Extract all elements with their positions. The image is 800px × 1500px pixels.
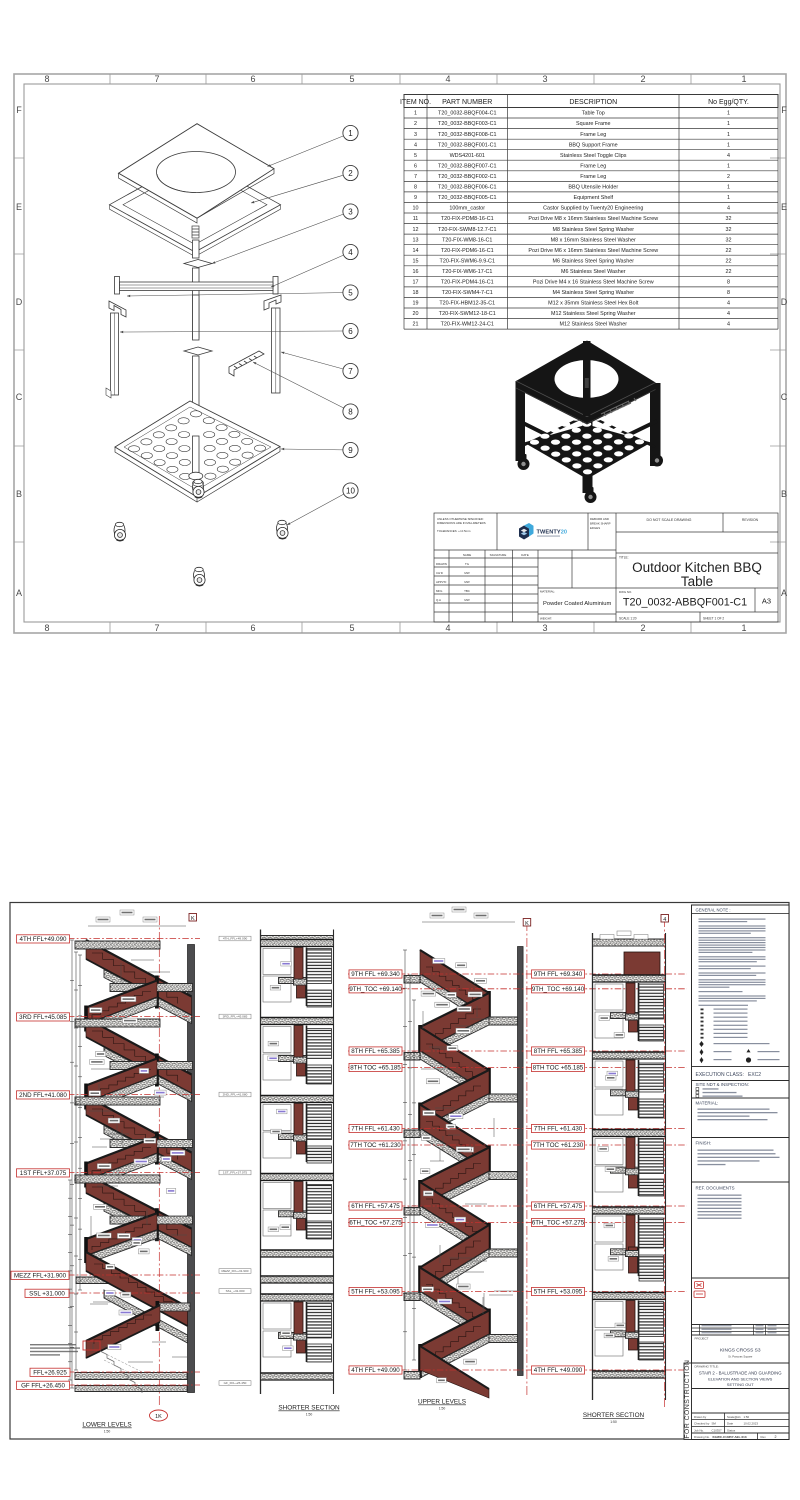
svg-text:5: 5 <box>349 623 354 633</box>
svg-text:MEZZ_FFL+31.900: MEZZ_FFL+31.900 <box>222 1269 249 1273</box>
svg-text:A: A <box>16 588 22 598</box>
svg-text:Checked by: Checked by <box>694 1422 710 1426</box>
svg-text:4: 4 <box>348 248 353 257</box>
svg-text:9TH_TOC +69.140: 9TH_TOC +69.140 <box>532 986 585 993</box>
svg-text:T20-FIX-SWM4-7-C1: T20-FIX-SWM4-7-C1 <box>442 290 493 296</box>
svg-text:Outdoor Kitchen BBQ: Outdoor Kitchen BBQ <box>632 560 762 575</box>
svg-text:8TH TOC +65.185: 8TH TOC +65.185 <box>350 1065 401 1072</box>
svg-text:3: 3 <box>542 623 547 633</box>
svg-text:NAME: NAME <box>463 553 471 557</box>
svg-text:5: 5 <box>414 153 417 159</box>
svg-text:7: 7 <box>154 623 159 633</box>
svg-text:4: 4 <box>727 322 730 328</box>
svg-text:T20-FIX-WM6-17-C1: T20-FIX-WM6-17-C1 <box>442 269 492 275</box>
svg-text:1: 1 <box>727 185 730 191</box>
svg-text:E: E <box>16 202 22 212</box>
svg-text:T20-FIX-SWM6-9.9-C1: T20-FIX-SWM6-9.9-C1 <box>440 258 495 264</box>
svg-text:2: 2 <box>727 174 730 180</box>
svg-text:9: 9 <box>414 195 417 201</box>
svg-text:6: 6 <box>414 163 417 169</box>
svg-text:7: 7 <box>348 367 353 376</box>
svg-text:DIMENSIONS ARE IN MILLIMETERS: DIMENSIONS ARE IN MILLIMETERS <box>437 521 486 525</box>
svg-text:1:50: 1:50 <box>439 1407 446 1411</box>
svg-text:REF. DOCUMENTS: REF. DOCUMENTS <box>696 1186 735 1191</box>
svg-text:8: 8 <box>348 407 353 416</box>
svg-text:Drawn by: Drawn by <box>694 1415 707 1419</box>
svg-text:SIGNATURE: SIGNATURE <box>490 553 507 557</box>
svg-text:D: D <box>781 297 788 307</box>
svg-text:4TH FFL+49.090: 4TH FFL+49.090 <box>20 936 68 943</box>
svg-text:T20-FIX-SWM12-18-C1: T20-FIX-SWM12-18-C1 <box>439 311 496 317</box>
svg-text:4: 4 <box>445 623 450 633</box>
svg-text:4: 4 <box>727 311 730 317</box>
svg-text:2ND FFL+41.080: 2ND FFL+41.080 <box>19 1092 67 1099</box>
svg-text:T20_0032-ABBQF001-C1: T20_0032-ABBQF001-C1 <box>623 597 747 609</box>
svg-text:16: 16 <box>413 269 419 275</box>
svg-text:Frame Leg: Frame Leg <box>580 132 606 138</box>
svg-text:T20-FIX-PDM6-16-C1: T20-FIX-PDM6-16-C1 <box>441 248 494 254</box>
svg-text:SETTING OUT: SETTING OUT <box>727 1382 754 1387</box>
svg-text:MATERIAL:: MATERIAL: <box>540 590 555 594</box>
svg-text:6TH FFL +57.475: 6TH FFL +57.475 <box>534 1203 583 1210</box>
svg-text:2ND_FFL+41.080: 2ND_FFL+41.080 <box>223 1093 248 1097</box>
svg-text:7TH TOC +61.230: 7TH TOC +61.230 <box>350 1142 401 1149</box>
svg-text:1: 1 <box>727 121 730 127</box>
svg-text:SCALE 1:20: SCALE 1:20 <box>619 617 637 621</box>
svg-text:C: C <box>781 392 788 402</box>
svg-text:Square Frame: Square Frame <box>576 121 610 127</box>
svg-text:32: 32 <box>726 216 732 222</box>
svg-text:22: 22 <box>726 269 732 275</box>
svg-text:DESCRIPTION: DESCRIPTION <box>569 99 617 106</box>
svg-text:1:50: 1:50 <box>104 1430 111 1434</box>
svg-text:15: 15 <box>413 258 419 264</box>
svg-text:3: 3 <box>542 74 547 84</box>
svg-text:DEBURR AND: DEBURR AND <box>590 517 609 521</box>
svg-text:D: D <box>16 297 23 307</box>
svg-text:APPV'D: APPV'D <box>436 580 446 584</box>
svg-text:BREAK SHARP: BREAK SHARP <box>590 522 611 526</box>
svg-text:T20-FIX-PDM4-16-C1: T20-FIX-PDM4-16-C1 <box>441 280 494 286</box>
svg-text:T20_0032-BBQF003-C1: T20_0032-BBQF003-C1 <box>438 121 496 127</box>
svg-text:5: 5 <box>349 74 354 84</box>
svg-text:SHORTER SECTION: SHORTER SECTION <box>278 1405 340 1412</box>
svg-text:T20-FIX-PDM8-16-C1: T20-FIX-PDM8-16-C1 <box>441 216 494 222</box>
svg-text:LOWER LEVELS: LOWER LEVELS <box>82 1422 131 1429</box>
svg-text:MW: MW <box>464 571 469 575</box>
svg-text:17: 17 <box>413 280 419 286</box>
svg-text:Frame Leg: Frame Leg <box>580 174 606 180</box>
svg-text:Powder Coated Aluminium: Powder Coated Aluminium <box>543 601 611 607</box>
svg-text:T20_0032-BBQF002-C1: T20_0032-BBQF002-C1 <box>438 174 496 180</box>
svg-text:MW: MW <box>464 598 469 602</box>
svg-text:13: 13 <box>413 237 419 243</box>
svg-text:BBQ Support Frame: BBQ Support Frame <box>569 142 618 148</box>
svg-text:7TH FFL +61.430: 7TH FFL +61.430 <box>534 1126 583 1133</box>
svg-text:T20_0032-BBQF006-C1: T20_0032-BBQF006-C1 <box>438 185 496 191</box>
svg-text:Status: Status <box>727 1428 736 1432</box>
svg-text:Stainless Steel Toggle Clips: Stainless Steel Toggle Clips <box>560 153 627 159</box>
svg-text:20: 20 <box>413 311 419 317</box>
svg-text:4: 4 <box>727 206 730 212</box>
svg-text:GF_FFL+26.450: GF_FFL+26.450 <box>224 1381 247 1385</box>
svg-text:MEZZ FFL+31.900: MEZZ FFL+31.900 <box>14 1272 67 1279</box>
svg-text:14: 14 <box>413 248 419 254</box>
svg-text:1: 1 <box>741 74 746 84</box>
svg-text:1: 1 <box>727 195 730 201</box>
svg-text:SSL_+31.000: SSL_+31.000 <box>226 1289 245 1293</box>
svg-text:8: 8 <box>727 290 730 296</box>
svg-text:1: 1 <box>727 132 730 138</box>
svg-text:M8 x 16mm Stainless Steel Wash: M8 x 16mm Stainless Steel Washer <box>551 237 636 243</box>
svg-text:5TH FFL +53.095: 5TH FFL +53.095 <box>534 1289 583 1296</box>
svg-text:5: 5 <box>348 288 353 297</box>
svg-text:T20-FIX-WM12-24-C1: T20-FIX-WM12-24-C1 <box>441 322 494 328</box>
svg-text:1K: 1K <box>155 1414 162 1420</box>
svg-text:6: 6 <box>250 74 255 84</box>
svg-text:T20_0032-BBQF005-C1: T20_0032-BBQF005-C1 <box>438 195 496 201</box>
svg-text:10: 10 <box>413 206 419 212</box>
svg-text:22: 22 <box>726 258 732 264</box>
svg-text:1: 1 <box>741 623 746 633</box>
svg-text:TBC: TBC <box>464 589 470 593</box>
svg-text:11: 11 <box>413 216 419 222</box>
svg-text:32: 32 <box>726 227 732 233</box>
svg-text:T20-FIX-HBM12-35-C1: T20-FIX-HBM12-35-C1 <box>439 301 495 307</box>
svg-text:8: 8 <box>44 74 49 84</box>
svg-text:BBQ Utensile Holder: BBQ Utensile Holder <box>568 185 618 191</box>
svg-text:T20-FIX-SWM8-12.7-C1: T20-FIX-SWM8-12.7-C1 <box>438 227 496 233</box>
svg-text:Equipment Shelf: Equipment Shelf <box>573 195 613 201</box>
svg-text:8TH FFL +65.385: 8TH FFL +65.385 <box>534 1048 583 1055</box>
svg-text:6TH_TOC +57.275: 6TH_TOC +57.275 <box>532 1220 585 1227</box>
svg-text:SHEET 1 OF 2: SHEET 1 OF 2 <box>703 617 724 621</box>
svg-text:FFL+26.925: FFL+26.925 <box>33 1369 67 1376</box>
svg-text:4TH_FFL+49.090: 4TH_FFL+49.090 <box>223 937 248 941</box>
svg-text:T20_0032-BBQF007-C1: T20_0032-BBQF007-C1 <box>438 163 496 169</box>
svg-text:1ST_FFL+37.075: 1ST_FFL+37.075 <box>223 1171 247 1175</box>
svg-text:Pozi Drive M6 x 16mm Stainless: Pozi Drive M6 x 16mm Stainless Steel Mac… <box>528 248 658 254</box>
svg-text:No Egg/QTY.: No Egg/QTY. <box>708 99 749 106</box>
svg-text:GENERAL NOTE :: GENERAL NOTE : <box>696 908 731 913</box>
svg-text:12: 12 <box>413 227 419 233</box>
svg-text:1:50: 1:50 <box>610 1420 617 1424</box>
svg-text:Frame Leg: Frame Leg <box>580 163 606 169</box>
svg-text:PART NUMBER: PART NUMBER <box>442 99 492 106</box>
svg-text:M4 Stainless Steel Spring Wash: M4 Stainless Steel Spring Washer <box>552 290 634 296</box>
svg-text:1: 1 <box>727 111 730 117</box>
svg-text:6: 6 <box>250 623 255 633</box>
svg-text:C: C <box>16 392 23 402</box>
svg-text:B: B <box>781 489 787 499</box>
svg-text:M12 x 35mm Stainless Steel Hex: M12 x 35mm Stainless Steel Hex Bolt <box>548 301 639 307</box>
svg-text:1: 1 <box>727 142 730 148</box>
svg-text:MFG: MFG <box>436 589 443 593</box>
svg-text:M12 Stainless Steel Washer: M12 Stainless Steel Washer <box>559 322 627 328</box>
svg-text:2: 2 <box>414 121 417 127</box>
svg-text:10.02.2023: 10.02.2023 <box>744 1422 759 1426</box>
svg-text:32: 32 <box>726 237 732 243</box>
svg-text:CH'D: CH'D <box>436 571 443 575</box>
svg-text:22: 22 <box>726 248 732 254</box>
svg-text:SSL +31.000: SSL +31.000 <box>29 1290 65 1297</box>
svg-text:Q.A: Q.A <box>436 598 441 602</box>
svg-text:3: 3 <box>414 132 417 138</box>
svg-text:DRAWING TITLE:: DRAWING TITLE: <box>695 1365 719 1369</box>
svg-text:7TH TOC +61.230: 7TH TOC +61.230 <box>533 1142 584 1149</box>
svg-text:Pozi Drive M8 x 16mm Stainless: Pozi Drive M8 x 16mm Stainless Steel Mac… <box>528 216 658 222</box>
svg-text:DWG NO.: DWG NO. <box>619 590 632 594</box>
svg-text:SM: SM <box>712 1422 717 1426</box>
svg-text:F: F <box>781 105 787 115</box>
svg-text:C10357: C10357 <box>712 1428 723 1432</box>
svg-text:Table Top: Table Top <box>582 111 605 117</box>
svg-text:1: 1 <box>727 163 730 169</box>
svg-text:2: 2 <box>640 74 645 84</box>
svg-text:T20_0032-BBQF001-C1: T20_0032-BBQF001-C1 <box>438 142 496 148</box>
svg-text:3RD_FFL+45.085: 3RD_FFL+45.085 <box>223 1015 248 1019</box>
svg-text:MW: MW <box>464 580 469 584</box>
svg-text:Drawing No.: Drawing No. <box>694 1435 710 1439</box>
svg-text:KGWC-C10357-AEL-013: KGWC-C10357-AEL-013 <box>712 1435 746 1439</box>
svg-text:1:50: 1:50 <box>744 1415 750 1419</box>
svg-text:21: 21 <box>413 322 419 328</box>
svg-text:TG: TG <box>465 562 470 566</box>
svg-text:2: 2 <box>348 169 353 178</box>
svg-text:4: 4 <box>414 142 417 148</box>
svg-text:E: E <box>781 202 787 212</box>
svg-text:TWENTY20: TWENTY20 <box>537 530 568 536</box>
svg-text:9TH FFL +69.340: 9TH FFL +69.340 <box>534 971 583 978</box>
svg-text:FOR CONSTRUCTION: FOR CONSTRUCTION <box>684 1360 691 1439</box>
svg-text:8: 8 <box>44 623 49 633</box>
svg-text:1: 1 <box>414 111 417 117</box>
svg-text:Table: Table <box>681 574 713 589</box>
svg-text:Job No.: Job No. <box>694 1428 704 1432</box>
svg-text:18: 18 <box>413 290 419 296</box>
svg-text:T20-FIX-WM8-16-C1: T20-FIX-WM8-16-C1 <box>442 237 492 243</box>
svg-text:STAIR 2 - BALUSTRADE AND GUARD: STAIR 2 - BALUSTRADE AND GUARDING <box>699 1371 782 1376</box>
svg-text:8TH FFL +65.385: 8TH FFL +65.385 <box>351 1048 400 1055</box>
svg-text:SHORTER SECTION: SHORTER SECTION <box>583 1412 645 1419</box>
svg-text:4: 4 <box>445 74 450 84</box>
svg-text:F: F <box>16 105 22 115</box>
svg-text:ELEVATION AND SECTION VIEWS: ELEVATION AND SECTION VIEWS <box>708 1377 772 1382</box>
svg-text:4TH FFL +49.090: 4TH FFL +49.090 <box>351 1367 400 1374</box>
svg-text:1: 1 <box>348 129 353 138</box>
svg-text:5TH FFL +53.095: 5TH FFL +53.095 <box>351 1289 400 1296</box>
svg-text:4TH FFL +49.090: 4TH FFL +49.090 <box>534 1367 583 1374</box>
svg-text:DRAWN: DRAWN <box>436 562 447 566</box>
svg-text:4: 4 <box>663 917 666 923</box>
svg-text:7: 7 <box>414 174 417 180</box>
svg-text:EDGES: EDGES <box>590 526 600 530</box>
svg-text:PROJECT: PROJECT <box>695 1337 709 1341</box>
svg-text:St. Pancras Square: St. Pancras Square <box>728 1355 753 1359</box>
svg-text:WEIGHT:: WEIGHT: <box>540 617 552 621</box>
svg-text:A: A <box>781 588 787 598</box>
svg-text:TOLERANCES: +/-0.5mm: TOLERANCES: +/-0.5mm <box>437 529 471 533</box>
svg-text:8: 8 <box>727 280 730 286</box>
svg-text:6: 6 <box>348 327 353 336</box>
svg-text:M12 Stainless Steel Spring Was: M12 Stainless Steel Spring Washer <box>551 311 636 317</box>
svg-text:T20_0032-BBQF008-C1: T20_0032-BBQF008-C1 <box>438 132 496 138</box>
svg-text:Scale@A1: Scale@A1 <box>727 1415 741 1419</box>
svg-text:M6 Stainless Steel Spring Wash: M6 Stainless Steel Spring Washer <box>552 258 634 264</box>
svg-text:Pozi Drive M4 x 16 Stainless S: Pozi Drive M4 x 16 Stainless Steel Machi… <box>533 280 654 286</box>
svg-text:2: 2 <box>775 1435 777 1439</box>
svg-text:9: 9 <box>348 446 353 455</box>
svg-text:FINISH:: FINISH: <box>696 1141 712 1146</box>
svg-text:M8 Stainless Steel Spring Wash: M8 Stainless Steel Spring Washer <box>552 227 634 233</box>
svg-text:8: 8 <box>414 185 417 191</box>
svg-text:Rev: Rev <box>761 1435 767 1439</box>
svg-text:GF FFL+26.450: GF FFL+26.450 <box>21 1382 65 1389</box>
svg-text:DATE: DATE <box>521 553 529 557</box>
svg-text:3: 3 <box>348 207 353 216</box>
svg-text:4: 4 <box>727 301 730 307</box>
svg-text:4: 4 <box>727 153 730 159</box>
svg-text:10: 10 <box>346 486 355 495</box>
svg-text:KINGS CROSS S3: KINGS CROSS S3 <box>720 1348 761 1354</box>
svg-text:DO NOT SCALE DRAWING: DO NOT SCALE DRAWING <box>647 518 692 522</box>
svg-text:EXECUTION CLASS: EXC2: EXECUTION CLASS: EXC2 <box>696 1072 762 1078</box>
svg-text:M6 Stainless Steel Washer: M6 Stainless Steel Washer <box>561 269 626 275</box>
svg-text:Castor Supplied by Twenty20 En: Castor Supplied by Twenty20 Engineering <box>543 206 643 212</box>
svg-text:9TH_TOC +69.140: 9TH_TOC +69.140 <box>349 986 402 993</box>
svg-text:K: K <box>191 916 195 922</box>
svg-text:REVISION: REVISION <box>742 518 759 522</box>
svg-text:100mm_castor: 100mm_castor <box>449 206 485 212</box>
svg-text:3RD FFL+45.085: 3RD FFL+45.085 <box>19 1014 67 1021</box>
svg-text:7: 7 <box>154 74 159 84</box>
svg-text:2: 2 <box>640 623 645 633</box>
svg-text:T20_0032-BBQF004-C1: T20_0032-BBQF004-C1 <box>438 111 496 117</box>
svg-text:1ST FFL+37.075: 1ST FFL+37.075 <box>20 1170 67 1177</box>
svg-text:TITLE:: TITLE: <box>619 556 629 560</box>
svg-text:K: K <box>525 921 529 927</box>
svg-text:6TH FFL +57.475: 6TH FFL +57.475 <box>351 1203 400 1210</box>
svg-text:6TH_TOC +57.275: 6TH_TOC +57.275 <box>349 1220 402 1227</box>
svg-text:A3: A3 <box>762 597 771 606</box>
svg-text:SITE NDT & INSPECTION:: SITE NDT & INSPECTION: <box>696 1082 749 1087</box>
svg-text:8TH TOC +65.185: 8TH TOC +65.185 <box>533 1065 584 1072</box>
svg-text:WDS4201-601: WDS4201-601 <box>450 153 485 159</box>
svg-text:ITEM NO.: ITEM NO. <box>400 99 431 106</box>
svg-text:B: B <box>16 489 22 499</box>
svg-text:Date: Date <box>727 1422 733 1426</box>
svg-text:7TH FFL +61.430: 7TH FFL +61.430 <box>351 1126 400 1133</box>
svg-text:19: 19 <box>413 301 419 307</box>
svg-text:MATERIAL:: MATERIAL: <box>696 1101 719 1106</box>
svg-text:UPPER LEVELS: UPPER LEVELS <box>418 1399 466 1406</box>
svg-text:1:50: 1:50 <box>306 1413 313 1417</box>
svg-text:9TH FFL +69.340: 9TH FFL +69.340 <box>351 971 400 978</box>
